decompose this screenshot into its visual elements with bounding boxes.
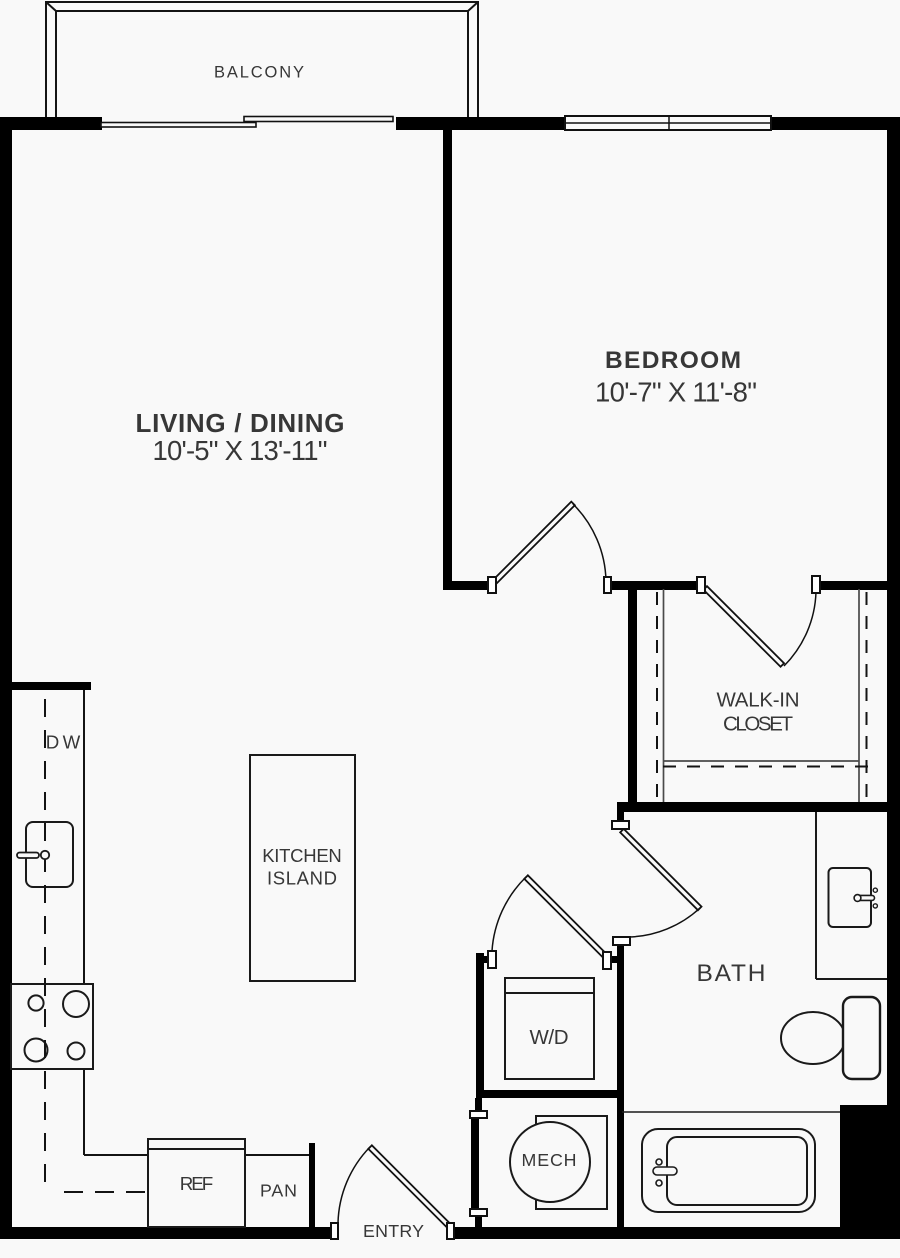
svg-text:10'-7" X 11'-8": 10'-7" X 11'-8"	[595, 377, 757, 408]
svg-text:DW: DW	[46, 732, 81, 753]
svg-text:10'-5" X 13'-11": 10'-5" X 13'-11"	[153, 435, 328, 466]
svg-text:WALK-IN: WALK-IN	[717, 689, 800, 712]
svg-text:KITCHEN: KITCHEN	[262, 845, 342, 866]
svg-text:LIVING / DINING: LIVING / DINING	[136, 408, 345, 438]
svg-text:BALCONY: BALCONY	[214, 64, 304, 82]
svg-text:ENTRY: ENTRY	[363, 1221, 424, 1241]
svg-text:BEDROOM: BEDROOM	[605, 347, 741, 374]
svg-text:W/D: W/D	[530, 1026, 569, 1049]
svg-text:PAN: PAN	[260, 1181, 297, 1201]
svg-text:REF: REF	[180, 1173, 214, 1194]
svg-text:ISLAND: ISLAND	[267, 868, 337, 889]
svg-text:BATH: BATH	[697, 960, 766, 987]
svg-text:CLOSET: CLOSET	[723, 713, 793, 736]
svg-text:MECH: MECH	[522, 1150, 577, 1170]
